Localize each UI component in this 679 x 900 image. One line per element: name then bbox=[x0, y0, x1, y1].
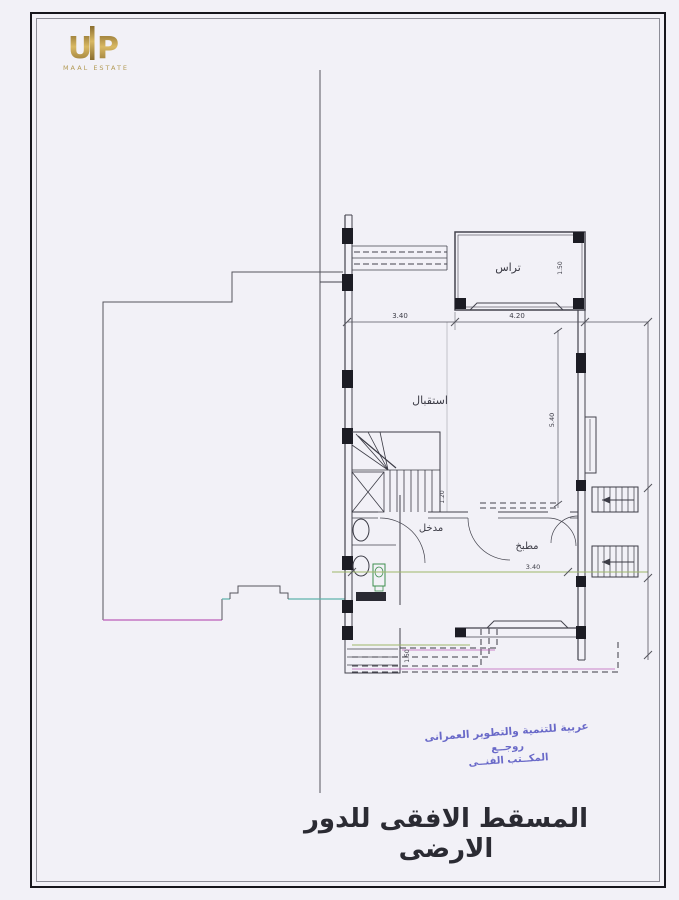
dim-text: 4.20 bbox=[509, 312, 525, 320]
room-label-kitchen: مطبخ bbox=[515, 541, 538, 552]
interior-partitions bbox=[352, 495, 578, 605]
drawing-title: المسقط الافقى للدور الارضى bbox=[285, 804, 607, 864]
structural-columns bbox=[342, 228, 586, 640]
floor-plan: 3.40 4.20 3.40 5.40 1.50 1.20 1.50 تراس … bbox=[0, 0, 679, 900]
building-walls bbox=[320, 215, 596, 673]
dim-text: 5.40 bbox=[548, 413, 556, 427]
exterior-stairs bbox=[592, 487, 638, 577]
room-label-terrace: تراس bbox=[495, 261, 521, 274]
staircase bbox=[352, 432, 440, 512]
left-parcel-outline bbox=[103, 272, 345, 620]
bathroom-fixtures bbox=[353, 519, 386, 601]
room-label-reception: استقبال bbox=[412, 394, 448, 407]
dimension-lines bbox=[332, 312, 652, 660]
dim-text: 1.20 bbox=[439, 490, 446, 504]
dim-text: 3.40 bbox=[526, 563, 540, 571]
dim-text: 3.40 bbox=[392, 312, 408, 320]
room-label-entrance: مدخل bbox=[419, 523, 443, 534]
dim-text: 1.50 bbox=[557, 261, 564, 275]
dimension-numbers: 3.40 4.20 3.40 5.40 1.50 1.20 1.50 bbox=[392, 261, 564, 663]
dim-text: 1.50 bbox=[404, 649, 411, 663]
